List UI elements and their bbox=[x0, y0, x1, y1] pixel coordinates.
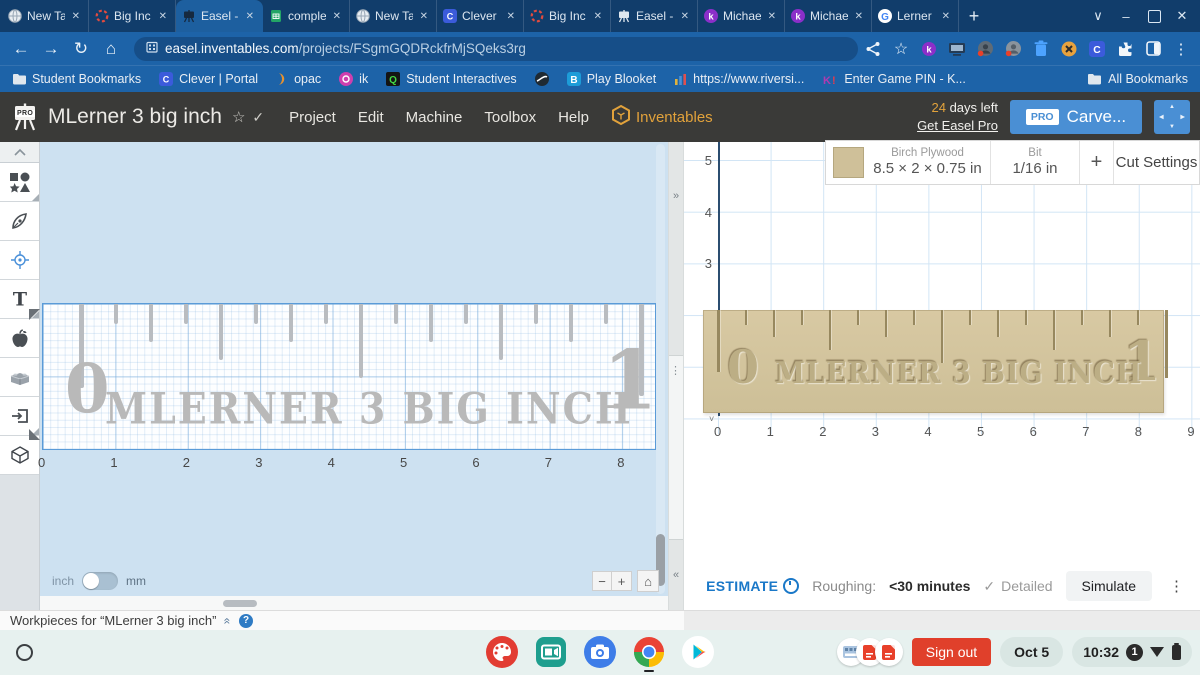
all-bookmarks-label: All Bookmarks bbox=[1108, 72, 1188, 86]
engraved-tick bbox=[941, 310, 943, 363]
svg-text:k: k bbox=[926, 44, 932, 55]
screen: New Ta✕Big Inc✕Easel -✕comple✕New Ta✕CCl… bbox=[0, 0, 1200, 675]
bit-selector[interactable]: Bit 1/16 in bbox=[991, 141, 1080, 184]
opac-icon bbox=[276, 72, 288, 86]
sign-out-button[interactable]: Sign out bbox=[912, 638, 991, 666]
canvas-axis-label: 1 bbox=[110, 455, 117, 470]
preview-x-label: 9 bbox=[1187, 424, 1194, 439]
tab-title: Big Inc bbox=[114, 9, 152, 23]
tab-title: Easel - bbox=[201, 9, 239, 23]
ruler-tick bbox=[254, 304, 258, 324]
preview-y-label: 5 bbox=[690, 153, 712, 168]
kami-favicon: k bbox=[704, 9, 718, 23]
ruler-tick bbox=[464, 304, 468, 324]
chart-icon bbox=[674, 73, 687, 86]
ruler-tick bbox=[359, 304, 363, 378]
tab-close-icon[interactable]: ✕ bbox=[940, 9, 952, 24]
engraved-tick bbox=[885, 310, 887, 337]
material-name: Birch Plywood bbox=[891, 147, 964, 161]
cut-settings-button[interactable]: Cut Settings bbox=[1114, 141, 1199, 184]
canvas-axis-label: 6 bbox=[472, 455, 479, 470]
date-pill[interactable]: Oct 5 bbox=[1000, 637, 1063, 667]
header-right: 24 days left Get Easel Pro PRO Carve... … bbox=[917, 99, 1200, 135]
browser-tab[interactable]: Big Inc✕ bbox=[89, 0, 176, 32]
clever-icon: C bbox=[159, 72, 173, 86]
split-screen-icon[interactable] bbox=[1142, 38, 1164, 60]
tab-title: Lerner bbox=[897, 9, 935, 23]
tab-close-icon[interactable]: ✕ bbox=[331, 9, 343, 24]
preview-x-label: 5 bbox=[977, 424, 984, 439]
tab-close-icon[interactable]: ✕ bbox=[766, 9, 778, 24]
bookmark-item[interactable]: https://www.riversi... bbox=[674, 72, 804, 86]
tab-close-icon[interactable]: ✕ bbox=[592, 9, 604, 24]
browser-tab[interactable]: New Ta✕ bbox=[2, 0, 89, 32]
sheets-favicon bbox=[269, 9, 283, 23]
estimate-menu-icon[interactable]: ⋮ bbox=[1165, 577, 1188, 595]
canvas-axis-label: 0 bbox=[38, 455, 45, 470]
tab-title: Easel - bbox=[636, 9, 674, 23]
bookmark-label: Clever | Portal bbox=[179, 72, 258, 86]
ruler-tick bbox=[289, 304, 293, 342]
pro-badge: PRO bbox=[1026, 109, 1059, 125]
zoom-in-button[interactable]: + bbox=[612, 571, 632, 591]
trash-icon[interactable] bbox=[1030, 38, 1052, 60]
clock-time: 10:32 bbox=[1083, 644, 1119, 660]
ruler-tick bbox=[429, 304, 433, 342]
url-path: /projects/FSgmGQDRckfrMjSQeks3rg bbox=[299, 41, 526, 56]
profile-b-icon[interactable] bbox=[1002, 38, 1024, 60]
unit-toggle: inch mm bbox=[52, 572, 146, 590]
preview-x-label: 2 bbox=[819, 424, 826, 439]
globe-dark-icon bbox=[535, 72, 549, 86]
scrollbar-thumb[interactable] bbox=[223, 600, 257, 607]
restore-window-icon[interactable] bbox=[1140, 10, 1168, 23]
bookmark-item[interactable]: ik bbox=[339, 72, 368, 86]
carve-label: Carve... bbox=[1067, 107, 1127, 127]
bookmark-item[interactable]: BPlay Blooket bbox=[567, 72, 656, 86]
all-bookmarks-button[interactable]: All Bookmarks bbox=[1087, 72, 1188, 86]
mm-label: mm bbox=[126, 574, 146, 588]
engraved-tick bbox=[717, 310, 720, 372]
blocksite-icon[interactable] bbox=[1058, 38, 1080, 60]
battery-icon bbox=[1172, 645, 1181, 660]
canvas-axis-label: 2 bbox=[183, 455, 190, 470]
tab-title: comple bbox=[288, 9, 326, 23]
tabs-container: New Ta✕Big Inc✕Easel -✕comple✕New Ta✕CCl… bbox=[0, 0, 959, 32]
material-workpiece[interactable]: 0 1 MLERNER 3 BIG INCH bbox=[42, 303, 656, 450]
tab-search-icon[interactable]: ∨ bbox=[1084, 8, 1112, 24]
tab-title: New Ta bbox=[27, 9, 65, 23]
collapse-workpieces-icon[interactable]: « bbox=[221, 617, 235, 624]
get-easel-pro-link[interactable]: Get Easel Pro bbox=[917, 117, 998, 135]
estimate-bar: ESTIMATE Roughing: <30 minutes ✓Detailed… bbox=[684, 562, 1200, 610]
tab-close-icon[interactable]: ✕ bbox=[244, 9, 256, 24]
bit-size: 1/16 in bbox=[1012, 160, 1057, 178]
tab-close-icon[interactable]: ✕ bbox=[505, 9, 517, 24]
browser-tab[interactable]: GLerner✕ bbox=[872, 0, 959, 32]
preview-x-label: 8 bbox=[1135, 424, 1142, 439]
bookmark-label: ik bbox=[359, 72, 368, 86]
zoom-controls: − + ⌂ bbox=[592, 570, 659, 592]
ruler-tick bbox=[184, 304, 188, 324]
estimate-label: ESTIMATE bbox=[706, 578, 799, 594]
workpieces-label: Workpieces for “MLerner 3 big inch” bbox=[10, 613, 216, 628]
simulate-button[interactable]: Simulate bbox=[1066, 571, 1152, 601]
ruler-tick bbox=[324, 304, 328, 324]
preview-x-label: 4 bbox=[924, 424, 931, 439]
menu-toolbox[interactable]: Toolbox bbox=[484, 109, 536, 126]
bookmark-item[interactable]: K!Enter Game PIN - K... bbox=[822, 72, 966, 86]
preview-y-label: 3 bbox=[690, 256, 712, 271]
divider-top bbox=[669, 142, 683, 356]
blooket-icon: B bbox=[567, 72, 581, 86]
ruler-tick bbox=[149, 304, 153, 342]
svg-text:B: B bbox=[570, 75, 577, 86]
saved-check-icon: ✓ bbox=[252, 109, 264, 126]
folder-icon bbox=[1087, 73, 1101, 85]
profile-a-icon[interactable] bbox=[974, 38, 996, 60]
ruler-numeral-zero[interactable]: 0 bbox=[65, 356, 110, 423]
browser-tab-strip: New Ta✕Big Inc✕Easel -✕comple✕New Ta✕CCl… bbox=[0, 0, 1200, 32]
material-swatch[interactable] bbox=[833, 147, 864, 178]
bookmark-label: opac bbox=[294, 72, 321, 86]
kami-icon[interactable]: k bbox=[918, 38, 940, 60]
bookmarks-bar: Student BookmarksCClever | PortalopacikQ… bbox=[0, 65, 1200, 92]
rec-favicon bbox=[95, 9, 109, 23]
browser-toolbar: ← → ↻ ⌂ easel.inventables.com/projects/F… bbox=[0, 32, 1200, 65]
easel-pro-logo-icon[interactable]: PRO bbox=[12, 102, 38, 132]
tab-title: Clever | bbox=[462, 9, 500, 23]
unit-switch[interactable] bbox=[82, 572, 118, 590]
carved-material-preview[interactable]: 0 1 MLERNER 3 BIG INCH bbox=[703, 310, 1164, 413]
easel-header: PRO MLerner 3 big inch ☆ ✓ ProjectEditMa… bbox=[0, 92, 1200, 142]
ruler-tick bbox=[394, 304, 398, 324]
ruler-tick bbox=[114, 304, 118, 324]
kahoot-icon: K! bbox=[822, 73, 838, 86]
roughing-label: Roughing: bbox=[812, 578, 876, 594]
engraved-text: MLERNER 3 BIG INCH bbox=[775, 359, 1116, 389]
jog-left-icon: ◀ bbox=[1159, 114, 1164, 121]
clever-favicon: C bbox=[443, 9, 457, 23]
roughing-value: <30 minutes bbox=[889, 578, 970, 594]
share-icon[interactable] bbox=[862, 38, 884, 60]
origin-tool[interactable] bbox=[0, 241, 39, 280]
canvas-app-icon[interactable] bbox=[486, 636, 518, 668]
tab-title: Big Inc bbox=[549, 9, 587, 23]
ruler-tick bbox=[569, 304, 573, 342]
launcher-button[interactable] bbox=[10, 638, 38, 666]
apps-tool[interactable] bbox=[0, 319, 39, 358]
bit-label: Bit bbox=[1028, 147, 1041, 161]
engraved-tick bbox=[997, 310, 999, 337]
preview-x-label: 7 bbox=[1082, 424, 1089, 439]
ruler-tick bbox=[499, 304, 503, 360]
svg-text:Q: Q bbox=[389, 75, 397, 86]
browser-tab[interactable]: New Ta✕ bbox=[350, 0, 437, 32]
days-left-number: 24 bbox=[932, 100, 946, 115]
browser-tab[interactable]: CClever |✕ bbox=[437, 0, 524, 32]
new-tab-button[interactable]: + bbox=[959, 0, 989, 32]
engraved-tick bbox=[857, 310, 859, 325]
svg-text:C: C bbox=[447, 12, 454, 22]
canvas-horizontal-scrollbar[interactable] bbox=[40, 596, 668, 610]
jog-machine-button[interactable]: ▲ ▼ ◀ ▶ bbox=[1154, 100, 1190, 134]
canvas-vertical-scrollbar[interactable] bbox=[656, 144, 665, 594]
ruler-tick bbox=[534, 304, 538, 324]
browser-tab[interactable]: kMichae✕ bbox=[698, 0, 785, 32]
jog-down-icon: ▼ bbox=[1169, 124, 1175, 130]
panel-divider[interactable]: » ⋮ « bbox=[668, 142, 684, 610]
site-info-icon[interactable] bbox=[146, 41, 158, 56]
bookmark-item[interactable]: Student Bookmarks bbox=[12, 72, 141, 86]
globe-favicon bbox=[8, 9, 22, 23]
shelf-status-area: Sign out Oct 5 10:32 1 bbox=[837, 637, 1192, 667]
engraved-tick bbox=[1081, 310, 1083, 325]
tab-close-icon[interactable]: ✕ bbox=[157, 9, 169, 24]
3d-preview-panel[interactable]: 543 0123456789 0 1 MLERNER 3 BIG INCH ˅ … bbox=[684, 142, 1200, 610]
pen-tool[interactable] bbox=[0, 202, 39, 241]
back-icon[interactable]: ← bbox=[8, 39, 34, 59]
inventables-hexagon-icon bbox=[612, 105, 630, 129]
reload-icon[interactable]: ↻ bbox=[68, 39, 94, 59]
help-icon[interactable]: ? bbox=[239, 614, 253, 628]
minimize-window-icon[interactable]: – bbox=[1112, 9, 1140, 24]
svg-text:G: G bbox=[881, 12, 889, 23]
tab-title: New Ta bbox=[375, 9, 413, 23]
status-tray[interactable]: 10:32 1 bbox=[1072, 637, 1192, 667]
origin-marker-icon: ˅ bbox=[709, 414, 714, 424]
zoom-out-button[interactable]: − bbox=[592, 571, 612, 591]
tab-title: Michae bbox=[810, 9, 848, 23]
engraved-tick bbox=[969, 310, 971, 325]
jog-up-icon: ▲ bbox=[1169, 104, 1175, 110]
engraved-tick bbox=[773, 310, 775, 337]
expand-panel-icon[interactable]: » bbox=[669, 190, 683, 202]
svg-text:C: C bbox=[163, 75, 170, 85]
browser-tab[interactable]: kMichae✕ bbox=[785, 0, 872, 32]
engraved-tick bbox=[913, 310, 915, 325]
tab-close-icon[interactable]: ✕ bbox=[70, 9, 82, 24]
material-size: 8.5 × 2 × 0.75 in bbox=[873, 160, 981, 178]
wifi-icon bbox=[1150, 647, 1164, 657]
bookmark-star-icon[interactable]: ☆ bbox=[890, 38, 912, 60]
engraved-tick bbox=[801, 310, 803, 325]
home-icon[interactable]: ⌂ bbox=[98, 39, 124, 59]
bookmark-label: Enter Game PIN - K... bbox=[844, 72, 966, 86]
notification-icon[interactable] bbox=[875, 638, 903, 666]
menu-help[interactable]: Help bbox=[558, 109, 589, 126]
trial-info: 24 days left Get Easel Pro bbox=[917, 99, 998, 135]
bookmark-item[interactable]: QStudent Interactives bbox=[386, 72, 516, 86]
close-window-icon[interactable]: ✕ bbox=[1168, 8, 1196, 24]
logo-pro-badge: PRO bbox=[15, 110, 35, 117]
engraved-numeral-zero: 0 bbox=[727, 344, 759, 390]
bookmark-item[interactable]: opac bbox=[276, 72, 321, 86]
ik-icon bbox=[339, 72, 353, 86]
svg-text:k: k bbox=[795, 12, 801, 23]
canvas-axis-label: 4 bbox=[328, 455, 335, 470]
extensions-icon[interactable] bbox=[1114, 38, 1136, 60]
material-settings-card: Birch Plywood 8.5 × 2 × 0.75 in Bit 1/16… bbox=[825, 140, 1200, 185]
browser-tab[interactable]: Big Inc✕ bbox=[524, 0, 611, 32]
engraved-tick bbox=[1137, 310, 1139, 325]
jog-right-icon: ▶ bbox=[1180, 114, 1185, 121]
canvas-axis-label: 3 bbox=[255, 455, 262, 470]
browser-tab[interactable]: comple✕ bbox=[263, 0, 350, 32]
preview-x-label: 3 bbox=[872, 424, 879, 439]
bookmark-items: Student BookmarksCClever | PortalopacikQ… bbox=[12, 72, 966, 86]
screencast-app-icon[interactable] bbox=[535, 636, 567, 668]
menu-project[interactable]: Project bbox=[289, 109, 336, 126]
svg-text:K: K bbox=[823, 75, 831, 86]
tab-close-icon[interactable]: ✕ bbox=[853, 9, 865, 24]
ruler-text[interactable]: MLERNER 3 BIG INCH bbox=[105, 383, 611, 433]
bookmark-item[interactable] bbox=[535, 72, 549, 86]
globe-favicon bbox=[356, 9, 370, 23]
detailed-toggle[interactable]: ✓Detailed bbox=[983, 578, 1052, 595]
engraved-tick bbox=[1025, 310, 1027, 325]
ruler-tick bbox=[219, 304, 223, 360]
address-bar[interactable]: easel.inventables.com/projects/FSgmGQDRc… bbox=[134, 37, 858, 61]
bookmark-item[interactable]: CClever | Portal bbox=[159, 72, 258, 86]
clever-icon[interactable]: C bbox=[1086, 38, 1108, 60]
bookmark-label: https://www.riversi... bbox=[693, 72, 804, 86]
browser-tab[interactable]: Easel -✕ bbox=[176, 0, 263, 32]
days-left-text: days left bbox=[946, 100, 998, 115]
favorite-star-icon[interactable]: ☆ bbox=[232, 108, 245, 126]
camera-app-icon[interactable] bbox=[584, 636, 616, 668]
toolbar-actions: ☆kC⋮ bbox=[862, 38, 1192, 60]
inventables-label: Inventables bbox=[636, 109, 713, 126]
bookmark-label: Student Interactives bbox=[406, 72, 516, 86]
engraved-tick bbox=[1165, 310, 1168, 378]
menu-edit[interactable]: Edit bbox=[358, 109, 384, 126]
engraved-tick bbox=[745, 310, 747, 325]
bookmark-label: Student Bookmarks bbox=[32, 72, 141, 86]
inventables-brand[interactable]: Inventables bbox=[612, 105, 713, 129]
project-title[interactable]: MLerner 3 big inch bbox=[48, 105, 222, 129]
main-area: T 0 1 MLERNER 3 BIG INCH 012345678 inch … bbox=[0, 142, 1200, 610]
selection-handle[interactable] bbox=[29, 429, 40, 440]
tab-close-icon[interactable]: ✕ bbox=[679, 9, 691, 24]
canvas-axis-label: 8 bbox=[617, 455, 624, 470]
easel-favicon bbox=[617, 9, 631, 23]
tool-rail: T bbox=[0, 142, 40, 610]
preview-x-label: 0 bbox=[714, 424, 721, 439]
cast-icon[interactable] bbox=[946, 38, 968, 60]
easel-favicon bbox=[182, 9, 196, 23]
menu-machine[interactable]: Machine bbox=[406, 109, 463, 126]
workpieces-bar[interactable]: Workpieces for “MLerner 3 big inch” « ? bbox=[0, 610, 684, 630]
menu-icon[interactable]: ⋮ bbox=[1170, 38, 1192, 60]
engraved-tick bbox=[829, 310, 831, 350]
tab-close-icon[interactable]: ✕ bbox=[418, 9, 430, 24]
svg-text:T: T bbox=[12, 289, 26, 309]
canvas-axis-label: 5 bbox=[400, 455, 407, 470]
active-app-indicator bbox=[644, 670, 654, 672]
window-controls: ∨ – ✕ bbox=[1084, 0, 1200, 32]
material-tool[interactable] bbox=[0, 358, 39, 397]
clock-icon bbox=[783, 578, 799, 594]
inch-label: inch bbox=[52, 574, 74, 588]
cube-tool[interactable] bbox=[0, 436, 39, 475]
collapse-tools-button[interactable] bbox=[0, 142, 39, 163]
preview-x-label: 1 bbox=[767, 424, 774, 439]
carve-button[interactable]: PRO Carve... bbox=[1010, 100, 1142, 134]
ruler-tick bbox=[604, 304, 608, 324]
chrome-app-icon[interactable] bbox=[633, 636, 665, 668]
bookmark-label: Play Blooket bbox=[587, 72, 656, 86]
preview-y-label: 4 bbox=[690, 205, 712, 220]
svg-text:!: ! bbox=[832, 75, 836, 86]
google-favicon: G bbox=[878, 9, 892, 23]
qube-icon: Q bbox=[386, 72, 400, 86]
folder-icon bbox=[12, 73, 26, 85]
add-bit-button[interactable]: + bbox=[1080, 141, 1114, 184]
collapse-panel-icon[interactable]: « bbox=[669, 539, 683, 610]
svg-text:k: k bbox=[708, 12, 714, 23]
preview-x-label: 6 bbox=[1030, 424, 1037, 439]
kami-favicon: k bbox=[791, 9, 805, 23]
play-store-app-icon[interactable] bbox=[682, 636, 714, 668]
forward-icon[interactable]: → bbox=[38, 39, 64, 59]
notification-icons[interactable] bbox=[837, 638, 903, 666]
toggle-knob[interactable] bbox=[83, 573, 99, 589]
design-canvas[interactable]: 0 1 MLERNER 3 BIG INCH 012345678 inch mm… bbox=[40, 142, 668, 610]
launcher-icon bbox=[16, 644, 33, 661]
shelf-apps bbox=[486, 636, 714, 668]
workpieces-bar-right bbox=[684, 610, 1200, 630]
rec-favicon bbox=[530, 9, 544, 23]
svg-text:C: C bbox=[1093, 45, 1101, 56]
menu-bar: ProjectEditMachineToolboxHelp bbox=[278, 109, 600, 126]
engraved-tick bbox=[1109, 310, 1111, 337]
canvas-axis-label: 7 bbox=[545, 455, 552, 470]
zoom-home-button[interactable]: ⌂ bbox=[637, 570, 659, 592]
tab-title: Michae bbox=[723, 9, 761, 23]
check-icon: ✓ bbox=[983, 578, 995, 595]
url-host: easel.inventables.com bbox=[165, 41, 299, 56]
selection-handle[interactable] bbox=[29, 309, 40, 320]
divider-drag-handle-icon[interactable]: ⋮ bbox=[669, 364, 683, 377]
notification-count-badge: 1 bbox=[1126, 644, 1143, 661]
material-selector[interactable]: Birch Plywood 8.5 × 2 × 0.75 in bbox=[826, 141, 991, 184]
chromeos-shelf: Sign out Oct 5 10:32 1 bbox=[0, 630, 1200, 675]
browser-tab[interactable]: Easel -✕ bbox=[611, 0, 698, 32]
engraved-tick bbox=[1053, 310, 1055, 350]
shapes-tool[interactable] bbox=[0, 163, 39, 202]
